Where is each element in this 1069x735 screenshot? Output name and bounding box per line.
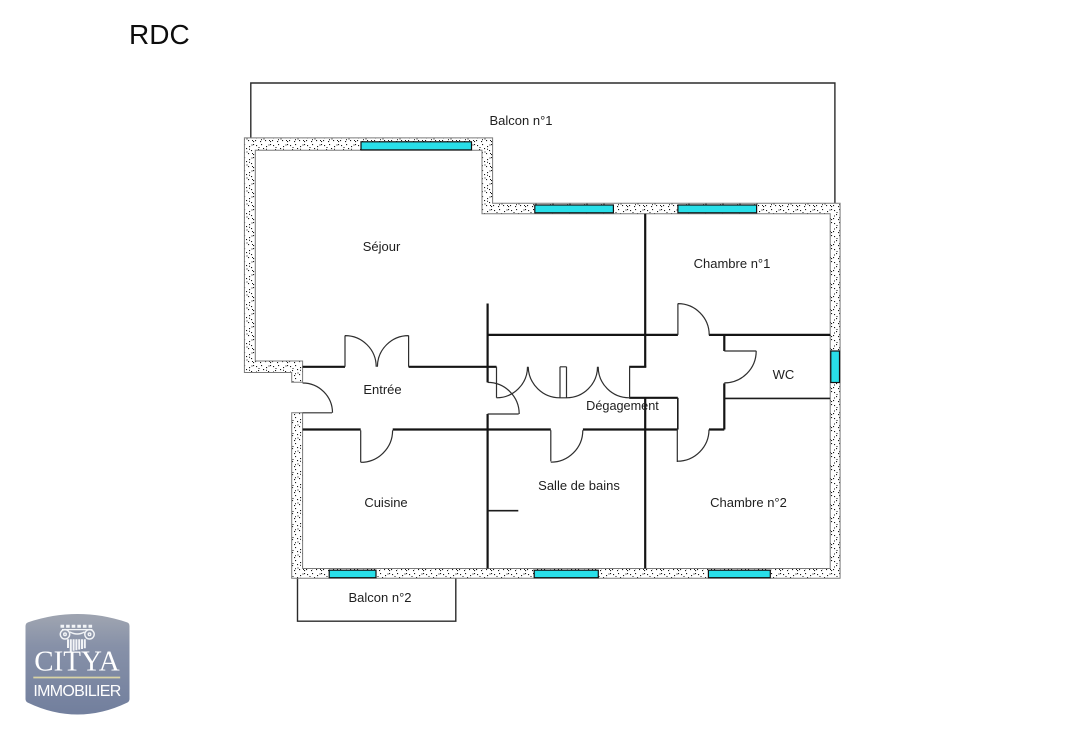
svg-text:RDC: RDC bbox=[129, 19, 190, 50]
svg-text:Séjour: Séjour bbox=[363, 239, 401, 254]
svg-text:Chambre n°2: Chambre n°2 bbox=[710, 495, 787, 510]
svg-text:Salle de bains: Salle de bains bbox=[538, 478, 620, 493]
svg-text:IMMOBILIER: IMMOBILIER bbox=[33, 683, 120, 700]
svg-text:Chambre n°1: Chambre n°1 bbox=[694, 256, 771, 271]
svg-text:Dégagement: Dégagement bbox=[586, 399, 659, 413]
svg-text:WC: WC bbox=[773, 367, 795, 382]
svg-text:Balcon n°2: Balcon n°2 bbox=[348, 590, 411, 605]
svg-text:Cuisine: Cuisine bbox=[364, 495, 407, 510]
svg-text:Balcon n°1: Balcon n°1 bbox=[489, 113, 552, 128]
svg-text:Entrée: Entrée bbox=[363, 382, 401, 397]
svg-text:CITYA: CITYA bbox=[34, 646, 119, 678]
